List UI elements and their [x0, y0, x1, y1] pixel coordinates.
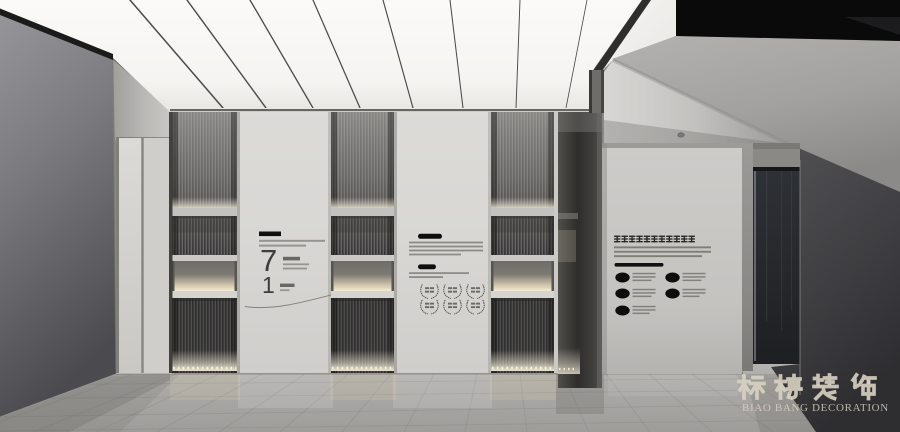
svg-text:BIAO BANG DECORATION: BIAO BANG DECORATION: [742, 402, 889, 414]
svg-text:1: 1: [262, 272, 275, 298]
